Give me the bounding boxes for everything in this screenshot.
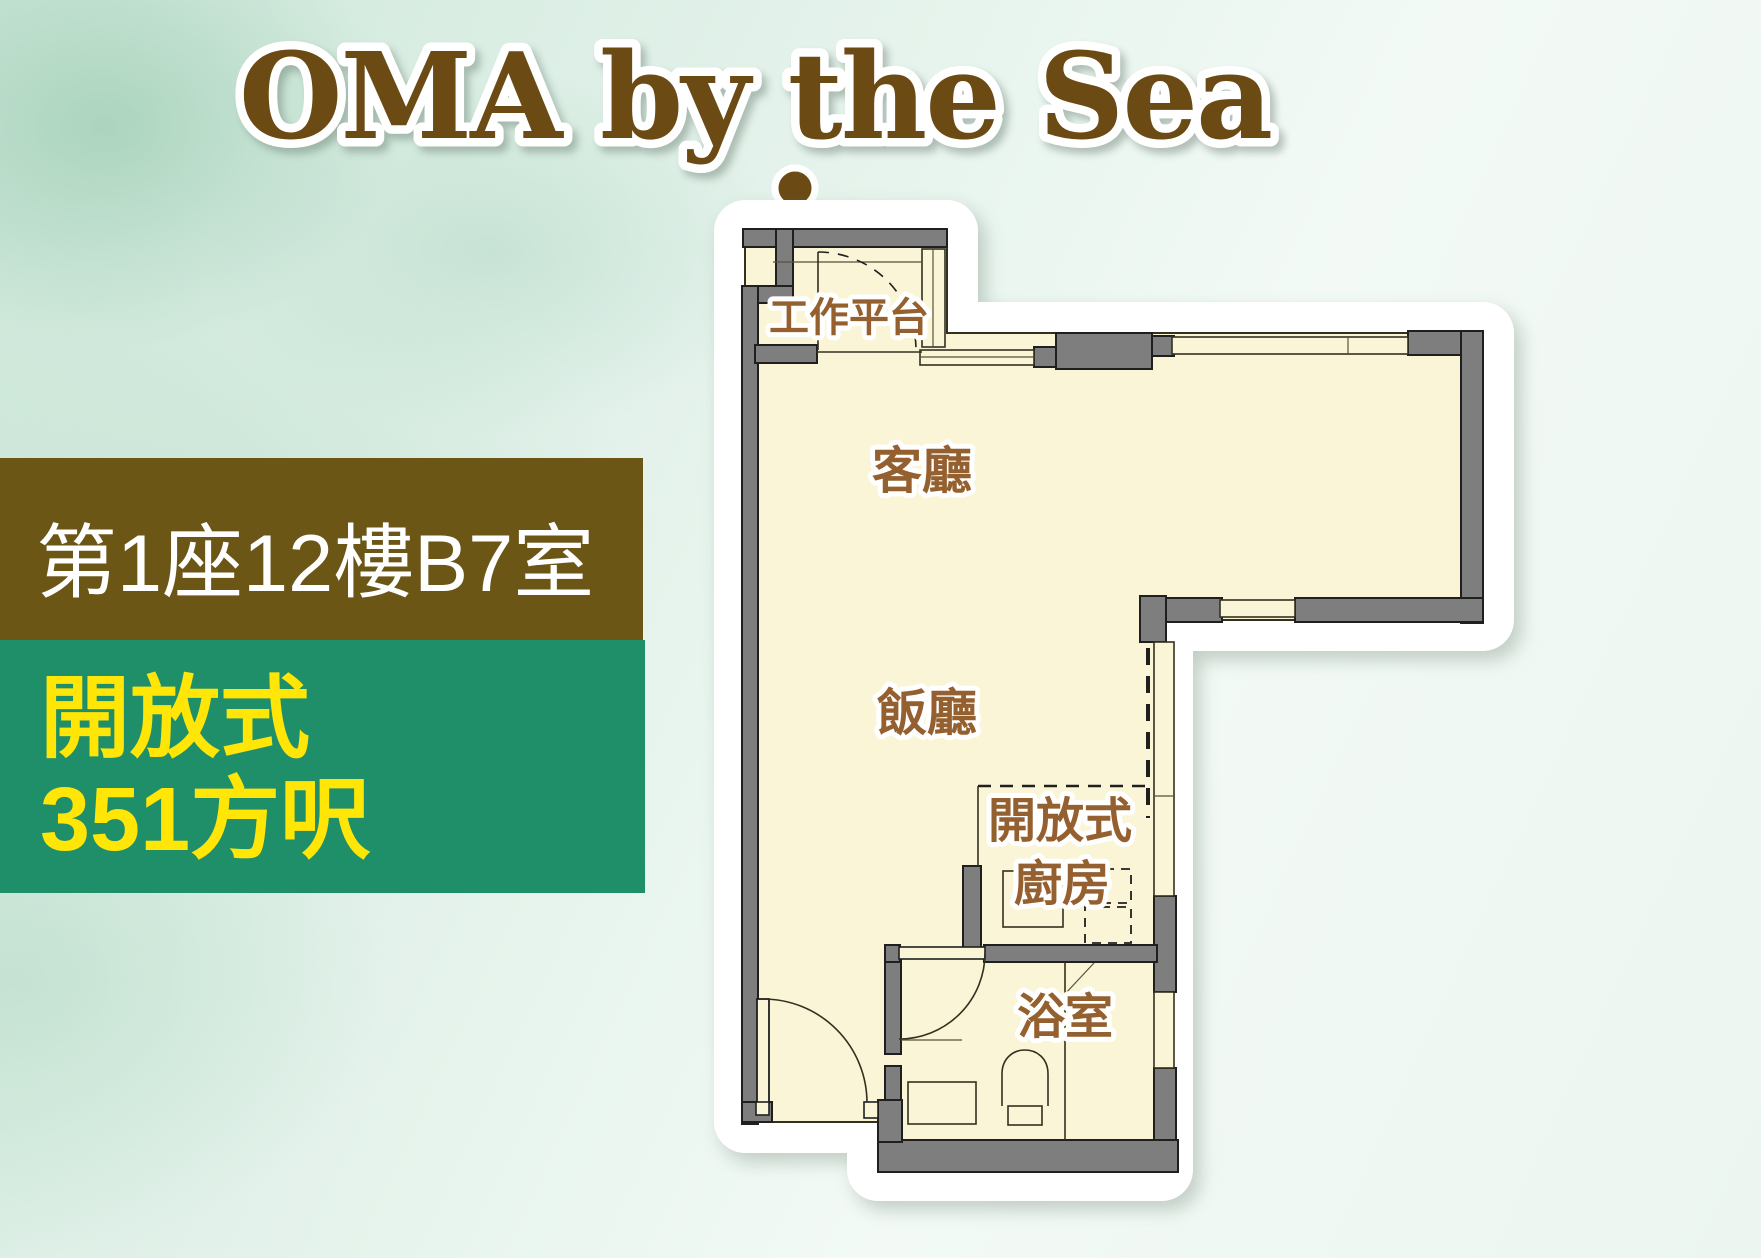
window <box>1154 642 1174 896</box>
room-label-open-kitchen-2: 廚房 <box>1014 857 1110 911</box>
room-label-work-platform: 工作平台 <box>769 296 929 340</box>
door-stop <box>864 1102 878 1118</box>
spec-area-text: 351方呎 <box>40 770 645 871</box>
unit-info-bar: 第1座12樓B7室 <box>0 458 643 640</box>
window <box>1172 337 1408 354</box>
wall-segment <box>885 960 901 1054</box>
room-label-open-kitchen-1: 開放式 <box>988 795 1132 848</box>
page-title: OMA by the Sea <box>239 27 1271 167</box>
entrance-door-leaf <box>757 999 769 1103</box>
wall-segment <box>743 229 947 247</box>
wall-segment <box>963 866 981 948</box>
room-label-dining-room: 飯廳 <box>877 685 977 741</box>
wall-segment <box>1295 598 1483 622</box>
door-stop <box>756 1102 769 1115</box>
window <box>1220 600 1295 617</box>
plan-floor <box>745 231 1483 1170</box>
wall-segment <box>1152 336 1174 356</box>
room-label-bathroom: 浴室 <box>1017 991 1113 1044</box>
wall-segment <box>742 286 758 1124</box>
wall-segment <box>885 945 900 962</box>
wall-segment <box>878 1140 1178 1172</box>
window <box>1154 992 1174 1068</box>
wall-segment <box>878 1100 902 1142</box>
room-label-living-room: 客廳 <box>872 443 972 499</box>
wall-segment <box>1154 1068 1176 1146</box>
wall-segment <box>1461 331 1483 623</box>
spec-info-bar: 開放式 351方呎 <box>0 640 645 893</box>
unit-info-text: 第1座12樓B7室 <box>36 498 594 615</box>
wall-segment <box>776 229 793 291</box>
floor-plan: 工作平台 客廳 飯廳 開放式 廚房 浴室 <box>742 229 1483 1172</box>
wall-segment <box>984 945 1157 962</box>
bathroom-door-leaf <box>899 947 985 959</box>
wall-segment <box>1056 333 1152 369</box>
page-title-text: OMA by the Sea <box>239 27 1271 167</box>
wall-segment <box>1034 347 1058 367</box>
spec-type-text: 開放式 <box>40 669 645 770</box>
wall-segment <box>1164 598 1222 622</box>
wall-segment <box>1140 596 1166 642</box>
wall-segment <box>755 345 817 363</box>
